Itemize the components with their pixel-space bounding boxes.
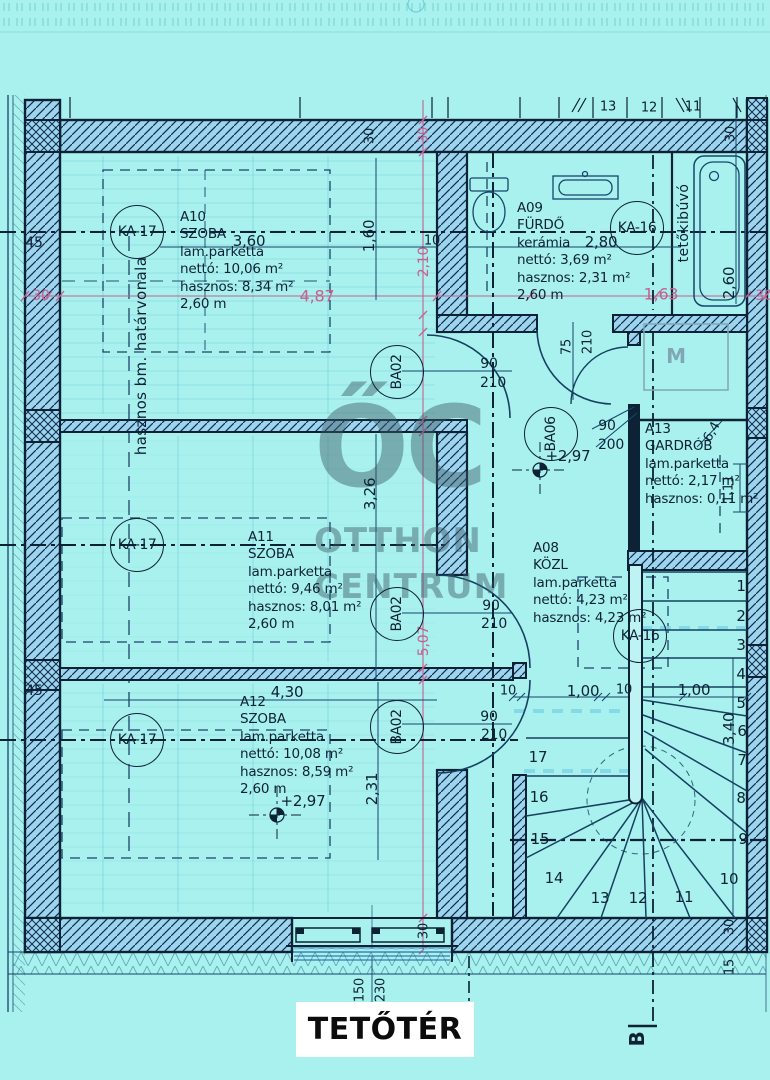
washing-machine-icon	[644, 324, 728, 390]
floor-title-box: TETŐTÉR	[296, 1002, 474, 1057]
staircase	[526, 565, 747, 918]
floor-title: TETŐTÉR	[308, 1012, 462, 1047]
toilet-bowl-icon	[473, 192, 505, 232]
roof-tile-pattern	[0, 0, 770, 32]
floorplan-drawing	[0, 0, 770, 1080]
top-tick-marks	[70, 97, 741, 118]
toilet-icon	[470, 178, 508, 191]
floorplan-page: ŐC OTTHON CENTRUM 3,601,60452,802,603013…	[0, 0, 770, 1080]
